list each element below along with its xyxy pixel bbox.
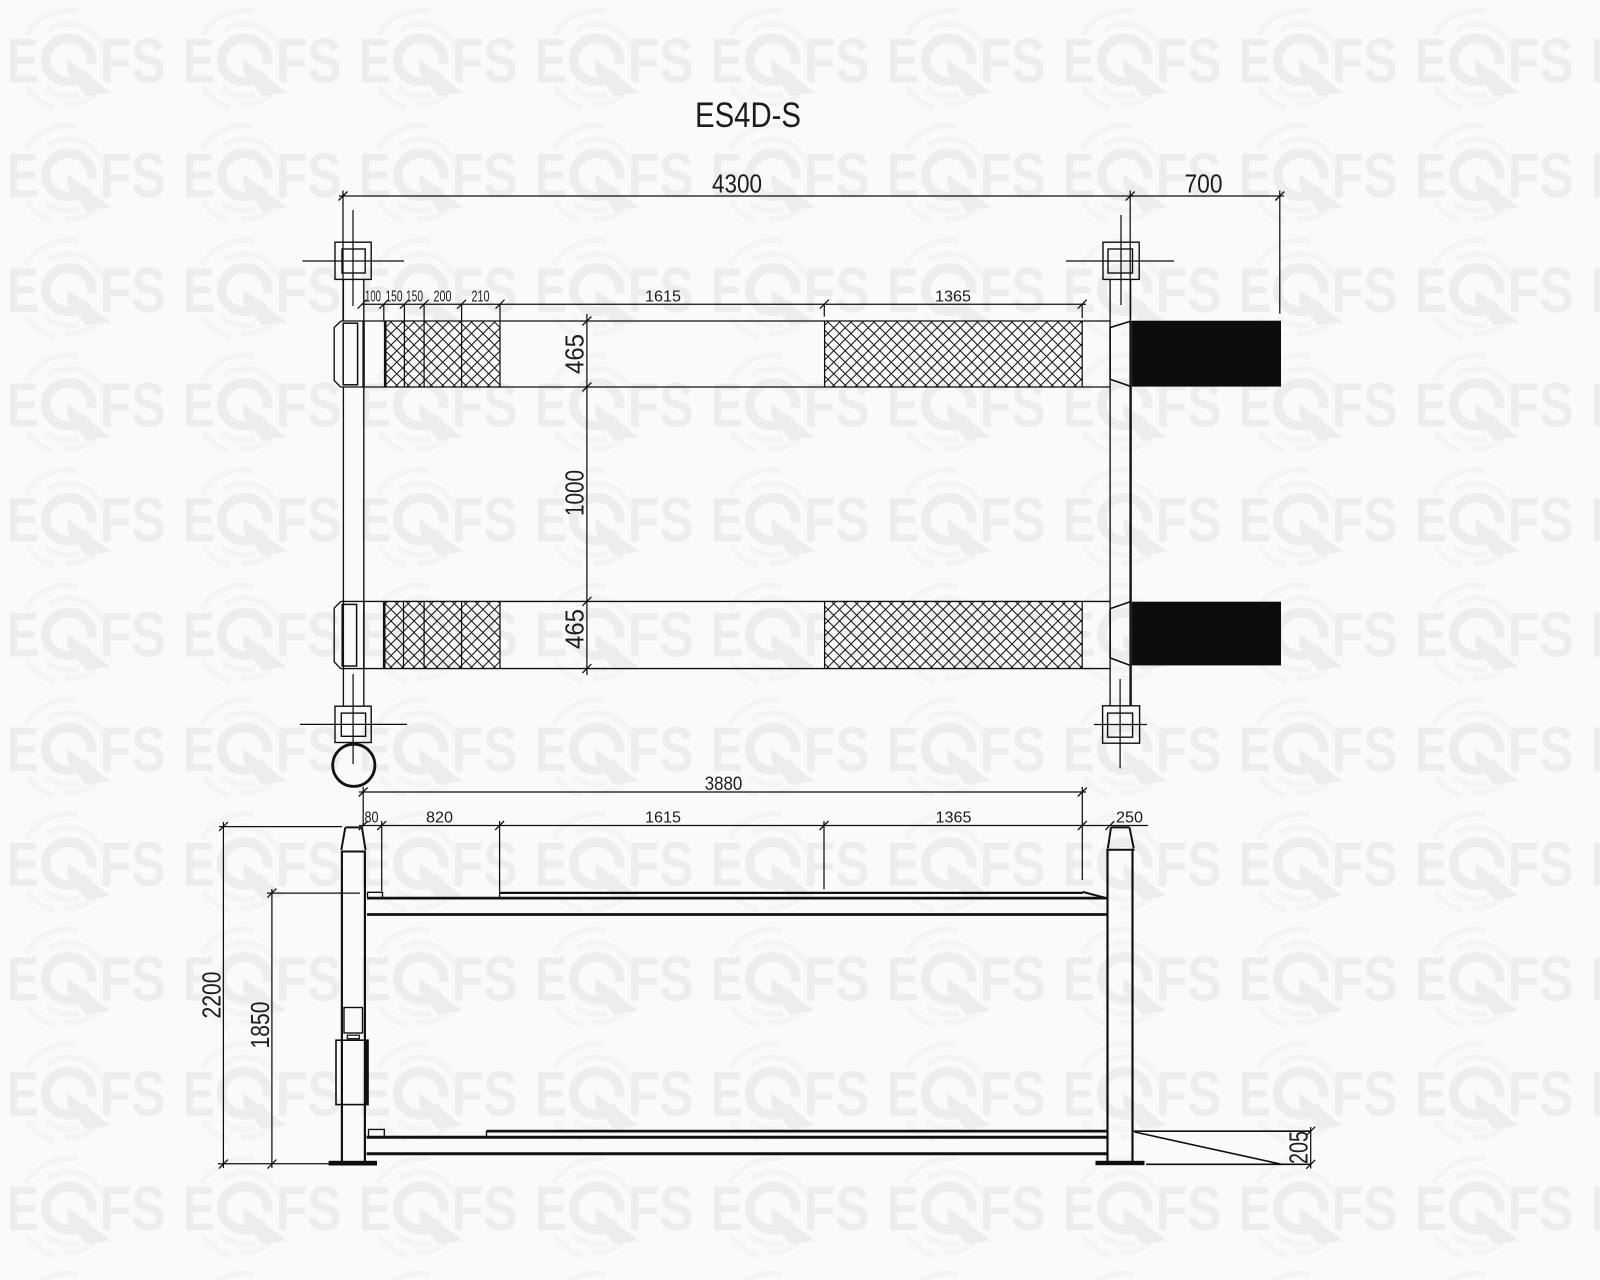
svg-text:1365: 1365 <box>935 289 971 306</box>
svg-text:4300: 4300 <box>712 169 762 199</box>
svg-text:1850: 1850 <box>245 1002 275 1049</box>
svg-text:200: 200 <box>434 289 452 306</box>
svg-text:465: 465 <box>560 334 590 374</box>
svg-text:820: 820 <box>426 810 453 827</box>
svg-text:1365: 1365 <box>936 810 972 827</box>
svg-text:3880: 3880 <box>705 774 743 795</box>
svg-text:ES4D-S: ES4D-S <box>695 96 801 135</box>
svg-text:100: 100 <box>365 289 381 306</box>
svg-text:700: 700 <box>1185 169 1223 199</box>
svg-text:1615: 1615 <box>645 289 681 306</box>
svg-text:1615: 1615 <box>645 810 681 827</box>
svg-text:150: 150 <box>386 289 403 306</box>
svg-text:2200: 2200 <box>197 972 227 1019</box>
svg-text:205: 205 <box>1284 1131 1314 1164</box>
svg-text:210: 210 <box>472 289 490 306</box>
svg-text:150: 150 <box>406 289 423 306</box>
svg-text:465: 465 <box>560 609 590 649</box>
svg-text:80: 80 <box>365 810 379 827</box>
svg-text:250: 250 <box>1116 810 1143 827</box>
svg-text:1000: 1000 <box>560 470 590 516</box>
